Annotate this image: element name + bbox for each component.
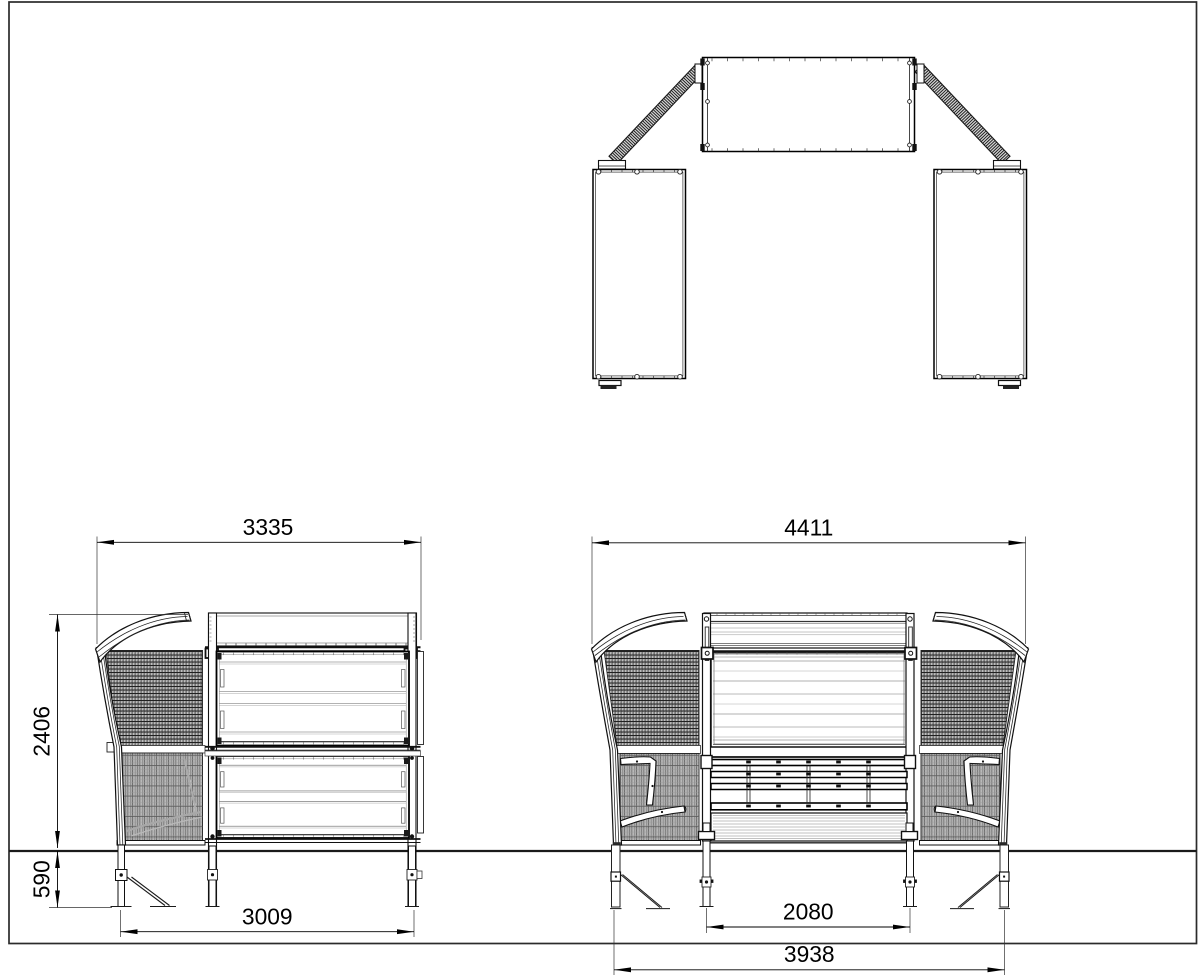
svg-text:590: 590 (29, 860, 55, 898)
svg-text:2406: 2406 (29, 706, 55, 757)
svg-text:3335: 3335 (243, 514, 294, 540)
svg-text:3938: 3938 (784, 941, 835, 967)
svg-text:4411: 4411 (784, 515, 833, 541)
svg-text:3009: 3009 (242, 904, 293, 930)
svg-text:2080: 2080 (783, 899, 834, 925)
